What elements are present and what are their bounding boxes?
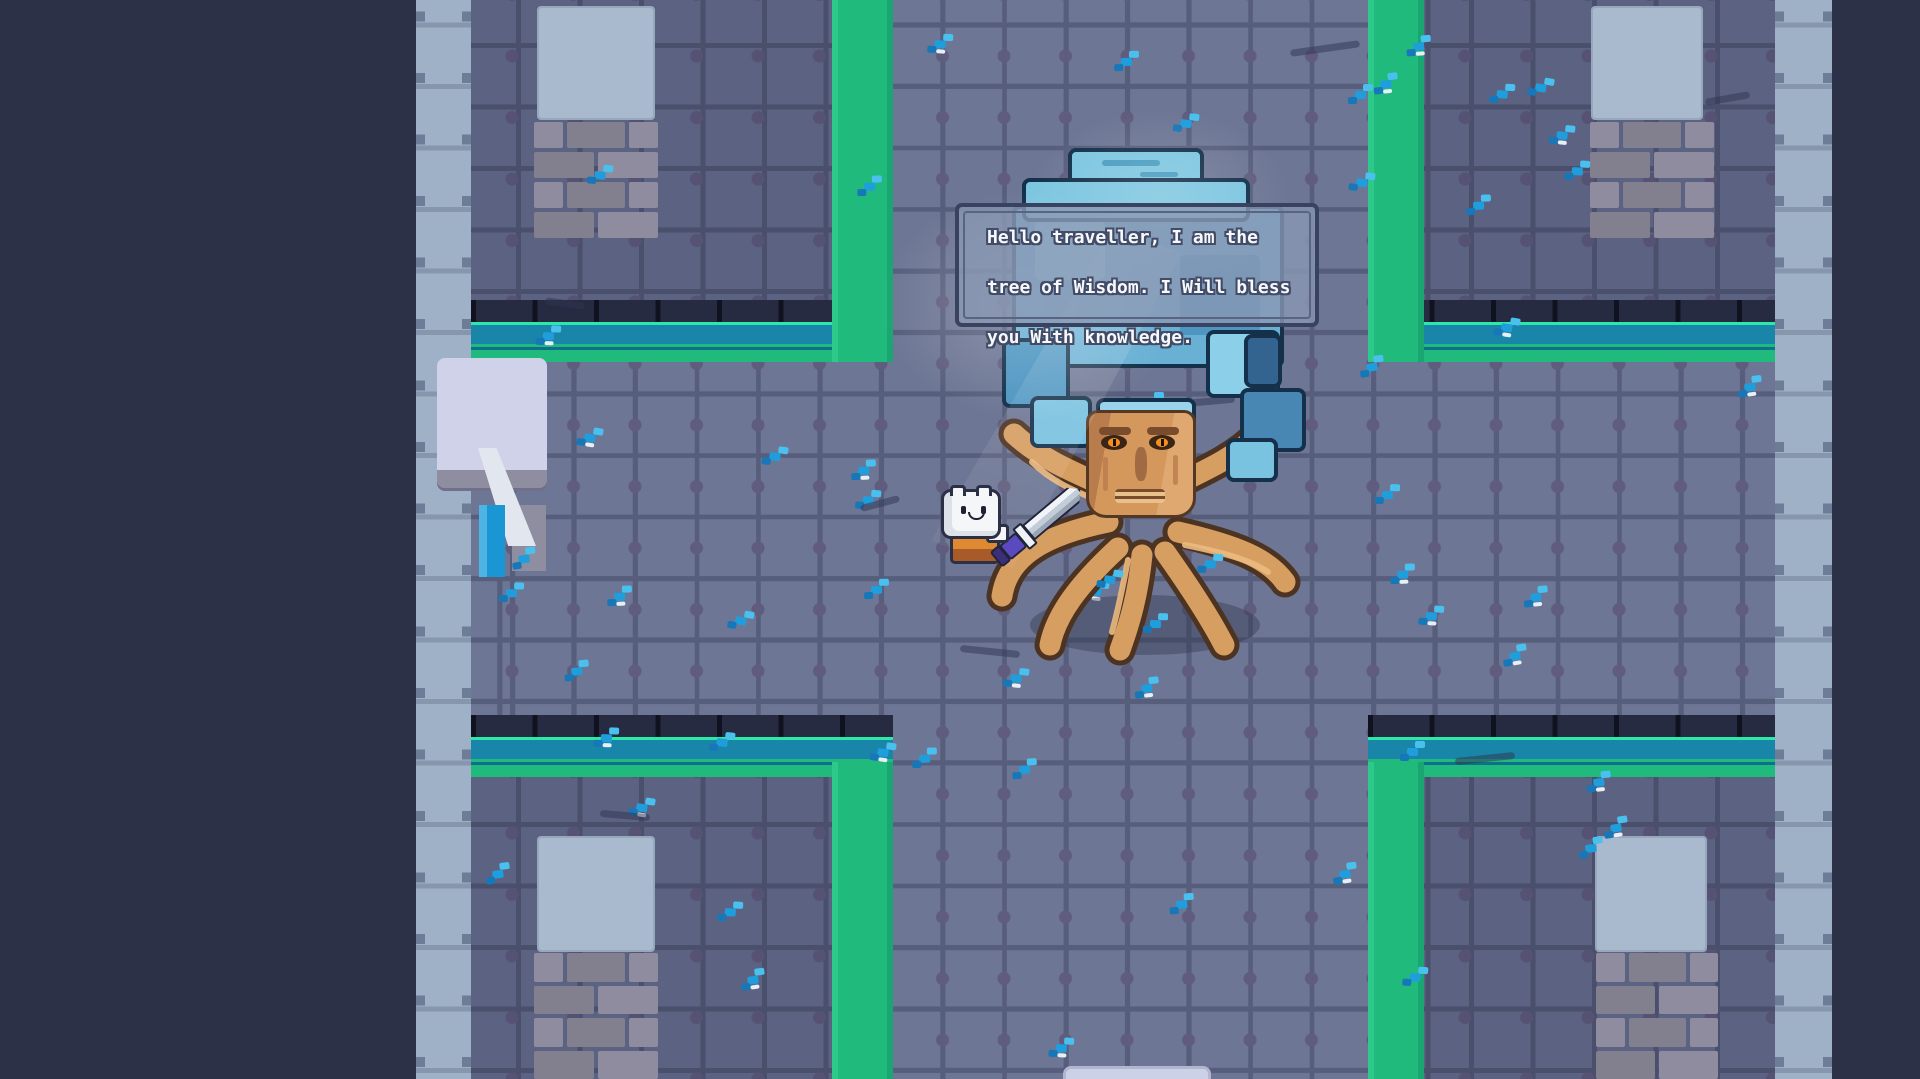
tree-face	[1086, 410, 1196, 518]
brick	[1629, 953, 1686, 982]
brick	[1654, 212, 1714, 238]
player-mouth	[968, 512, 985, 520]
brick	[1659, 1051, 1718, 1079]
waterfall	[479, 505, 505, 577]
player-eye	[961, 506, 966, 514]
brick	[629, 1018, 658, 1047]
wall-window	[539, 8, 653, 118]
dialog-line: tree of Wisdom. I Will bless	[987, 277, 1290, 298]
brick-patch	[1590, 122, 1714, 238]
wall-window	[1593, 8, 1701, 118]
void-right	[1832, 0, 1920, 1079]
ledge-bottom-left	[471, 715, 893, 777]
wall-window	[539, 838, 653, 950]
tree-mouth	[1115, 489, 1165, 503]
brick	[534, 953, 563, 982]
game-viewport[interactable]: Hello traveller, I am the tree of Wisdom…	[0, 0, 1920, 1079]
brick	[1659, 986, 1718, 1015]
tree-eye	[1149, 435, 1175, 450]
brick	[1623, 122, 1681, 148]
dialog-text: Hello traveller, I am the tree of Wisdom…	[987, 225, 1290, 350]
brick	[1596, 1018, 1625, 1047]
brick	[598, 986, 658, 1015]
brick	[629, 182, 658, 208]
brick	[1590, 182, 1619, 208]
brick-patch	[1596, 953, 1718, 1079]
brick	[629, 953, 658, 982]
brick	[1590, 152, 1650, 178]
brick	[1685, 182, 1714, 208]
brick	[567, 122, 625, 148]
tree-eye	[1101, 435, 1127, 450]
brick	[534, 986, 594, 1015]
ledge-bottom-right	[1368, 715, 1775, 777]
brick-patch	[534, 953, 658, 1079]
void-left	[0, 0, 416, 1079]
brick	[567, 953, 625, 982]
brick	[1596, 1051, 1655, 1079]
player-character[interactable]	[941, 489, 1001, 539]
green-path-bottom-right	[1368, 762, 1424, 1079]
brick	[567, 182, 625, 208]
brick	[598, 212, 658, 238]
dialog-line: Hello traveller, I am the	[987, 227, 1258, 248]
brick	[534, 182, 563, 208]
brick	[1654, 152, 1714, 178]
brick	[598, 1051, 658, 1079]
green-path-bottom-left	[832, 762, 893, 1079]
dialog-box[interactable]: Hello traveller, I am the tree of Wisdom…	[955, 203, 1319, 327]
brick	[629, 122, 658, 148]
stone-slab-bottom	[1063, 1066, 1211, 1079]
brick	[534, 152, 594, 178]
brick	[1596, 986, 1655, 1015]
canopy-block	[1226, 438, 1278, 482]
brick	[534, 212, 594, 238]
outer-wall-right	[1775, 0, 1832, 1079]
brick	[1590, 122, 1619, 148]
brick	[534, 1018, 563, 1047]
brick	[1590, 212, 1650, 238]
ledge-top-left	[471, 300, 893, 362]
dialog-line: you With knowledge.	[987, 327, 1193, 348]
outer-wall-left	[416, 0, 471, 1079]
brick	[1690, 1018, 1719, 1047]
brick	[1629, 1018, 1686, 1047]
brick	[534, 1051, 594, 1079]
ledge-top-right	[1368, 300, 1775, 362]
brick	[567, 1018, 625, 1047]
wall-window	[1597, 838, 1705, 950]
brick	[1690, 953, 1719, 982]
green-path-top-left	[832, 0, 893, 362]
canopy-block	[1030, 396, 1092, 448]
brick	[1685, 122, 1714, 148]
brick	[1623, 182, 1681, 208]
brick	[534, 122, 563, 148]
brick	[1596, 953, 1625, 982]
